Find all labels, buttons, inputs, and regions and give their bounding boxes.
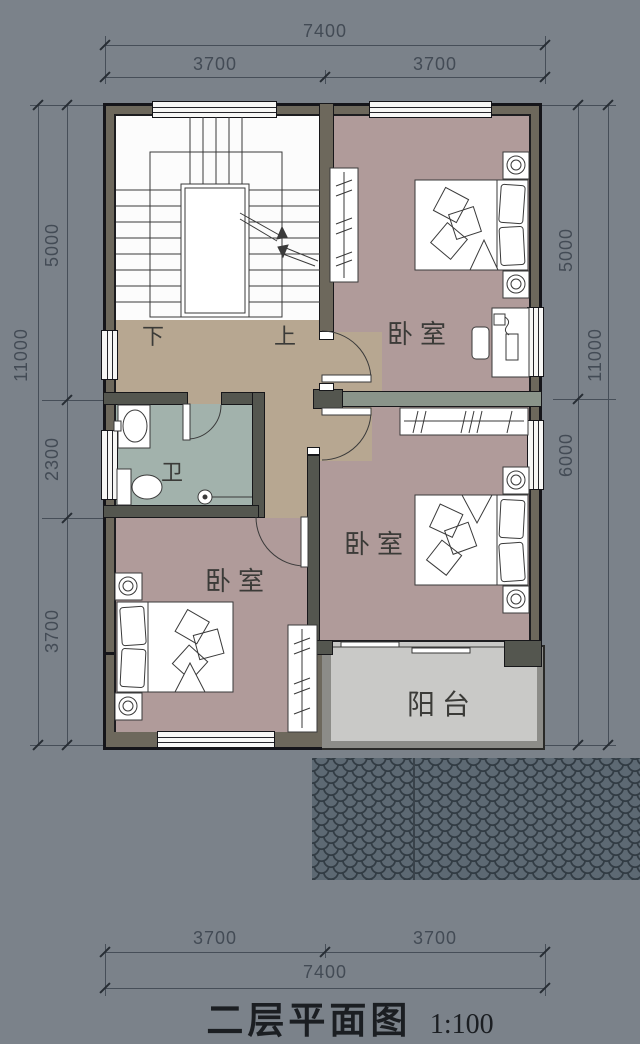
dim-label-top-overall: 7400 [283, 20, 367, 42]
dim-label-top-seg1: 3700 [173, 53, 257, 75]
dim-line-top-overall [105, 45, 546, 46]
stair-direction-arrow [240, 213, 318, 266]
dim-label-left-overall: 11000 [10, 313, 32, 397]
nightstand [503, 152, 529, 179]
door-bathroom [183, 404, 221, 440]
floor-plan: 卧室 卧室 卧室 卫 阳台 下 上 7400 3700 3700 3700 37… [0, 0, 640, 1044]
dim-label-bottom-overall: 7400 [283, 961, 367, 983]
nightstand [503, 467, 529, 494]
nightstand [115, 573, 142, 600]
dim-extension [42, 518, 103, 519]
dim-label-left-seg2: 2300 [41, 417, 63, 501]
double-bed [415, 180, 528, 270]
wardrobe [288, 625, 317, 732]
label-bathroom: 卫 [156, 455, 188, 487]
sink [114, 405, 150, 448]
staircase [116, 117, 320, 317]
wardrobe [400, 408, 528, 435]
dim-extension [553, 399, 616, 400]
label-bedroom-middle: 卧室 [327, 524, 427, 561]
label-balcony: 阳台 [387, 683, 497, 723]
title-block: 二层平面图 1:100 [150, 990, 550, 1044]
nightstand [503, 586, 529, 613]
dim-label-left-seg1: 5000 [41, 203, 63, 287]
dim-line-right-overall [608, 105, 609, 745]
desk-with-chair [472, 308, 529, 377]
linework-layer [0, 0, 640, 1044]
nightstand [503, 271, 529, 298]
dim-label-right-overall: 11000 [584, 313, 606, 397]
floor-drain [198, 490, 252, 504]
door-bedroom-bottom [256, 517, 308, 567]
label-stairs-down: 下 [140, 319, 166, 351]
double-bed [415, 495, 528, 585]
door-bedroom-middle [322, 408, 371, 460]
dim-label-right-seg1: 5000 [555, 208, 577, 292]
door-bedroom-top [322, 331, 371, 382]
dim-label-bottom-seg1: 3700 [173, 927, 257, 949]
dim-line-bottom-overall [105, 988, 546, 989]
label-stairs-up: 上 [272, 319, 298, 351]
drawing-scale: 1:100 [430, 1009, 494, 1041]
dim-label-right-seg2: 6000 [555, 413, 577, 497]
label-bedroom-bottom: 卧室 [188, 561, 288, 598]
dim-line-left-overall [38, 105, 39, 745]
nightstand [115, 693, 142, 720]
drawing-title: 二层平面图 [206, 990, 411, 1044]
dim-line-left-segments [67, 105, 68, 745]
dim-extension [42, 400, 103, 401]
dim-label-top-seg2: 3700 [393, 53, 477, 75]
sliding-door-balcony [333, 642, 504, 653]
double-bed [117, 602, 233, 692]
label-bedroom-top: 卧室 [370, 314, 470, 351]
wardrobe [330, 168, 358, 282]
dim-label-bottom-seg2: 3700 [393, 927, 477, 949]
dim-line-right-segments [578, 105, 579, 745]
dim-label-left-seg3: 3700 [41, 589, 63, 673]
